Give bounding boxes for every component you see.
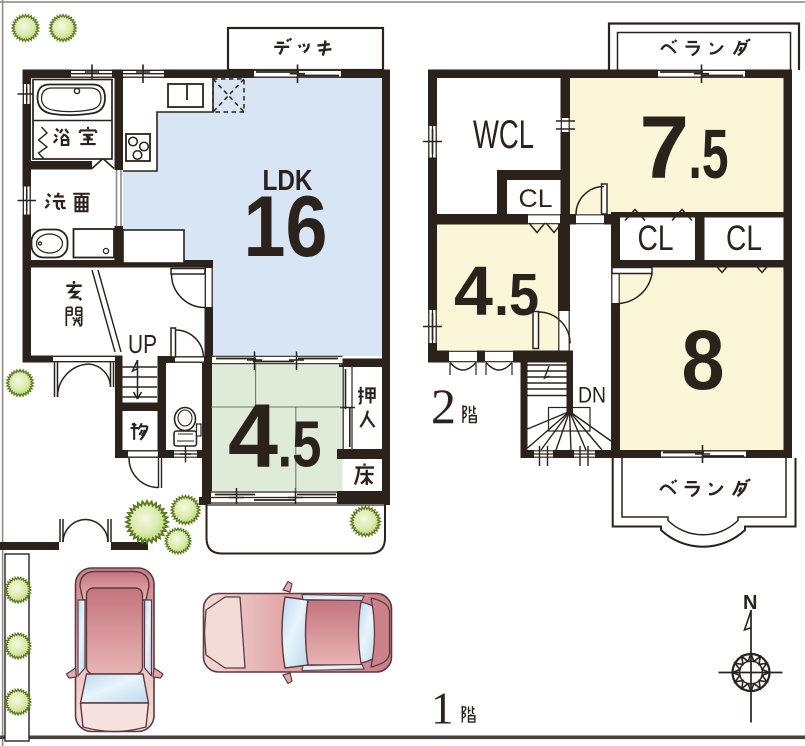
svg-text:1: 1 — [431, 684, 454, 734]
svg-text:DN: DN — [578, 383, 606, 408]
svg-text:2: 2 — [431, 378, 456, 434]
svg-text:CL: CL — [726, 219, 762, 258]
svg-text:CL: CL — [638, 219, 674, 258]
svg-text:4: 4 — [454, 252, 493, 330]
svg-text:.5: .5 — [278, 408, 322, 481]
svg-text:N: N — [743, 592, 757, 614]
svg-text:4: 4 — [228, 387, 278, 487]
svg-text:7: 7 — [640, 97, 690, 197]
svg-text:UP: UP — [128, 329, 157, 359]
svg-text:CL: CL — [519, 185, 553, 213]
svg-text:.5: .5 — [689, 115, 729, 193]
svg-text:.5: .5 — [494, 262, 539, 328]
svg-text:8: 8 — [682, 313, 725, 407]
svg-text:WCL: WCL — [473, 113, 534, 157]
svg-text:16: 16 — [244, 179, 328, 275]
